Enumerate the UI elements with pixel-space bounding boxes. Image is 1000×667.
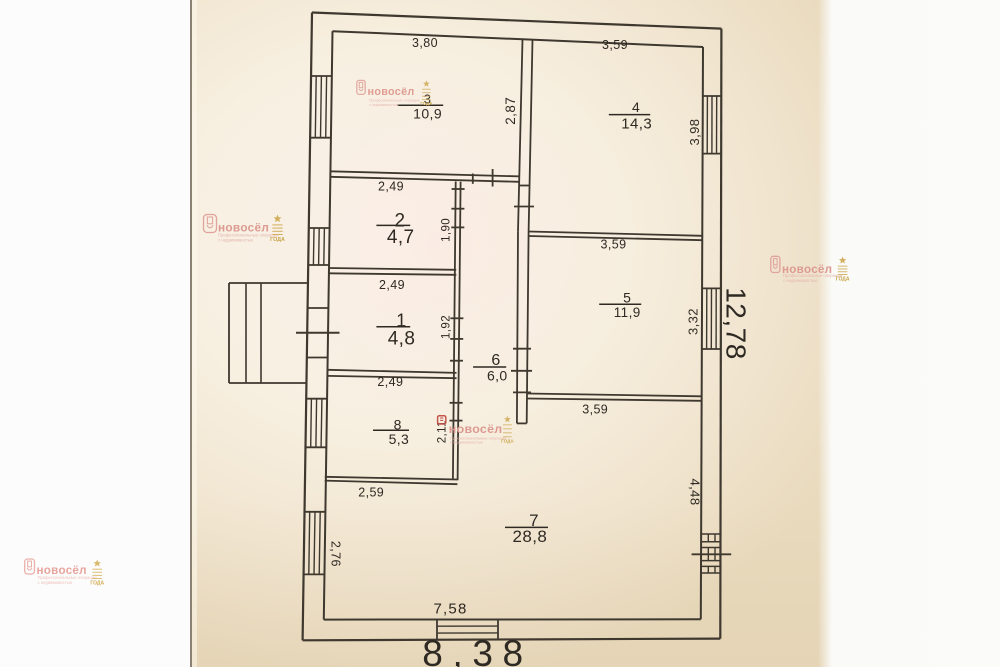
svg-text:2,49: 2,49 — [379, 278, 405, 292]
svg-text:с недвижимостью: с недвижимостью — [369, 103, 399, 107]
svg-text:4,7: 4,7 — [387, 227, 415, 248]
svg-text:ГОДА: ГОДА — [270, 237, 285, 243]
svg-text:с недвижимостью: с недвижимостью — [450, 440, 483, 445]
svg-text:1,92: 1,92 — [441, 315, 453, 339]
svg-text:ГОДА: ГОДА — [836, 277, 850, 283]
svg-text:5: 5 — [623, 290, 631, 306]
svg-text:3,32: 3,32 — [686, 308, 701, 335]
svg-text:ГОДА: ГОДА — [501, 438, 514, 443]
svg-text:1,90: 1,90 — [441, 218, 453, 242]
svg-text:5,3: 5,3 — [389, 431, 410, 447]
svg-text:3,80: 3,80 — [412, 36, 438, 50]
svg-text:14,3: 14,3 — [621, 115, 652, 132]
svg-text:2,49: 2,49 — [378, 179, 404, 193]
svg-text:с недвижимостью: с недвижимостью — [38, 580, 73, 585]
svg-text:с недвижимостью: с недвижимостью — [783, 278, 818, 283]
svg-text:6,0: 6,0 — [487, 368, 508, 384]
svg-text:12,78: 12,78 — [721, 287, 752, 360]
svg-text:8,38: 8,38 — [422, 633, 532, 667]
svg-text:28,8: 28,8 — [513, 527, 548, 546]
svg-text:3,59: 3,59 — [602, 38, 628, 52]
svg-text:2,87: 2,87 — [503, 97, 518, 125]
svg-text:2,76: 2,76 — [328, 541, 342, 567]
svg-text:10,9: 10,9 — [413, 106, 442, 122]
svg-text:11,9: 11,9 — [614, 305, 641, 320]
svg-text:4,8: 4,8 — [388, 328, 416, 349]
svg-text:ГОДА: ГОДА — [90, 581, 104, 587]
svg-text:новосёл: новосёл — [449, 422, 503, 436]
svg-text:4: 4 — [632, 99, 640, 115]
svg-text:новосёл: новосёл — [368, 86, 415, 98]
svg-text:7,58: 7,58 — [434, 601, 468, 618]
svg-text:3,59: 3,59 — [582, 403, 608, 417]
svg-text:ГОДА: ГОДА — [420, 101, 433, 106]
svg-text:2,59: 2,59 — [358, 486, 384, 500]
svg-text:3,59: 3,59 — [601, 237, 627, 251]
svg-text:с недвижимостью: с недвижимостью — [218, 238, 254, 243]
svg-text:3,98: 3,98 — [687, 119, 702, 146]
svg-text:4,48: 4,48 — [687, 479, 702, 506]
svg-text:2,49: 2,49 — [377, 375, 403, 389]
